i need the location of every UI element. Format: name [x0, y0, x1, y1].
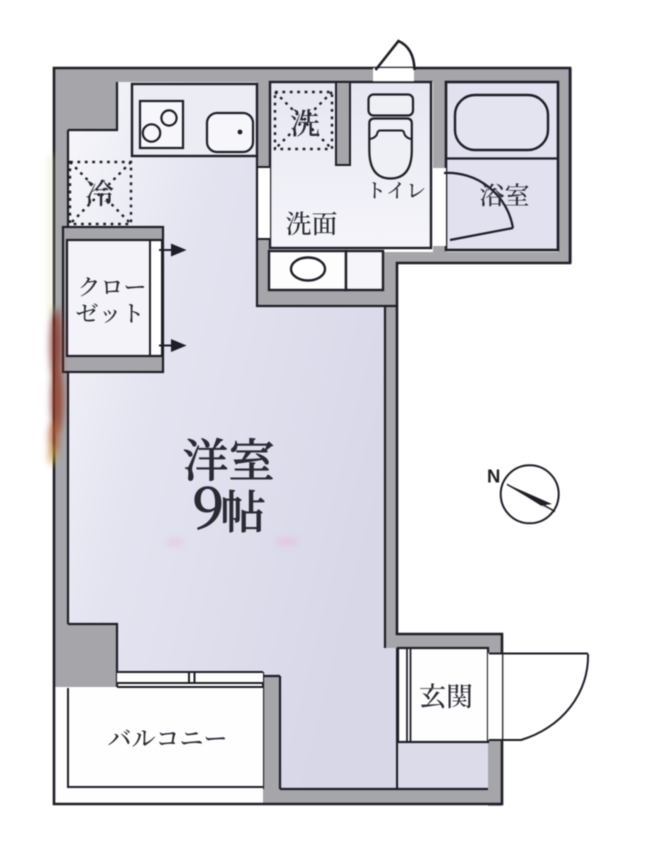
svg-text:N: N — [487, 466, 500, 487]
